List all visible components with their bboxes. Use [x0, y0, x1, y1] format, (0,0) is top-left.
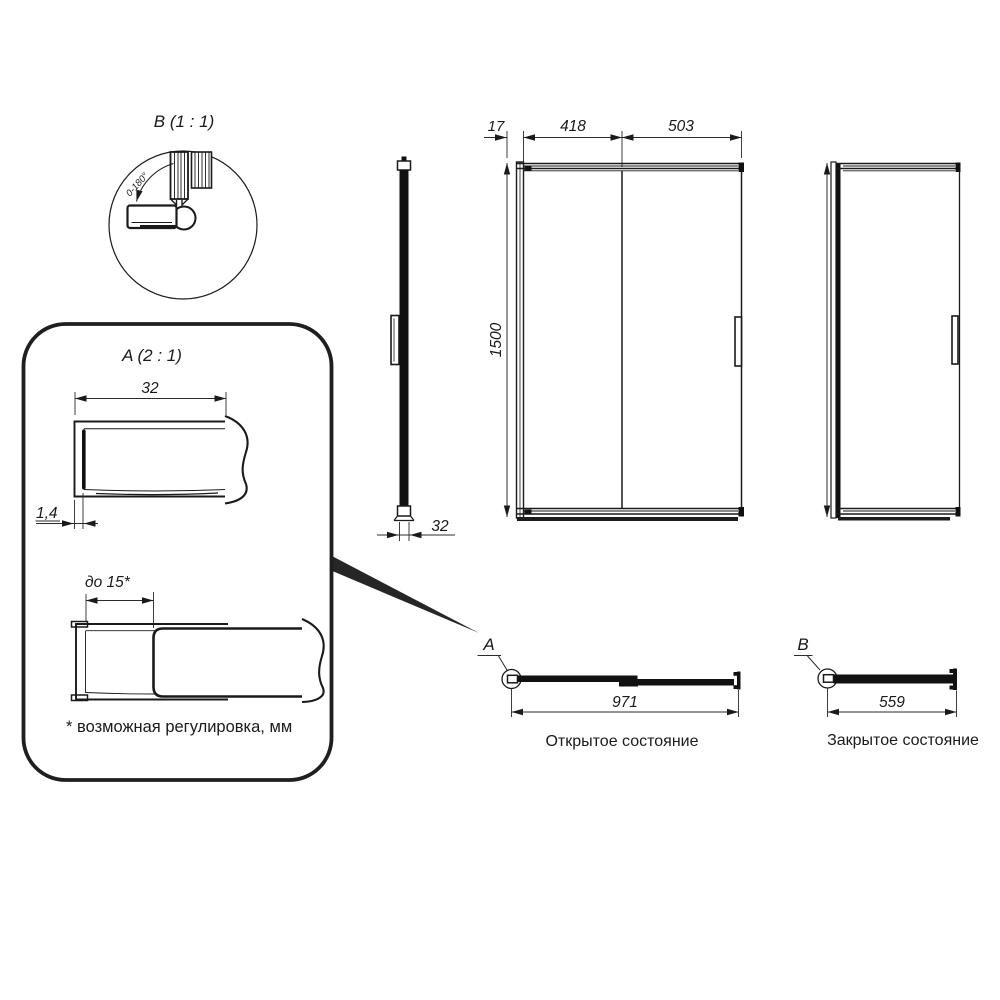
top-view-open-state: A 971 Открытое состояние [478, 635, 741, 750]
open-panel-right [637, 679, 734, 686]
technical-drawing: B (1 : 1) 0-180° A (2 : 1) 32 [0, 0, 1000, 1000]
callout-footnote: * возможная регулировка, мм [66, 718, 292, 736]
front-view-top-rail [517, 163, 744, 173]
open-panel-left [518, 676, 638, 683]
break-line-top [225, 416, 248, 504]
detail-b-title: B (1 : 1) [154, 112, 214, 131]
detail-b-view: B (1 : 1) 0-180° [109, 112, 257, 299]
side-view: 32 [377, 157, 455, 542]
front-view-open: 17 418 503 1500 [484, 118, 744, 521]
dim-label-do-15: до 15* [85, 574, 131, 591]
dim-label-971: 971 [612, 694, 638, 711]
dim-label-1500: 1500 [488, 322, 505, 357]
dim-label-418: 418 [560, 118, 586, 135]
closed-state-label: Закрытое состояние [827, 732, 979, 749]
detail-a-title: A (2 : 1) [121, 346, 182, 365]
detail-b-marker-label: B [797, 635, 808, 654]
closed-view-door-edge [837, 163, 841, 518]
front-view-bottom-rail [517, 507, 744, 521]
callout-leader-wedge [330, 555, 479, 633]
closed-view-top-rail [837, 163, 961, 173]
detail-a-marker-label: A [482, 635, 494, 654]
detail-b-arm [128, 206, 177, 229]
detail-b-door-profile [171, 152, 212, 206]
dim-label-32-side: 32 [431, 518, 449, 535]
top-view-closed-state: B 559 Закрытое состояние [794, 635, 979, 749]
dim-label-559: 559 [879, 694, 905, 711]
side-view-glass-edge [400, 170, 409, 506]
closed-view-bottom-rail [837, 507, 961, 521]
front-view-closed [827, 162, 961, 521]
dim-label-503: 503 [668, 118, 694, 135]
front-view-handle [735, 317, 742, 366]
dim-label-32-profile: 32 [141, 380, 159, 397]
dim-label-17: 17 [488, 118, 505, 135]
open-state-label: Открытое состояние [545, 733, 698, 750]
open-end-bracket [734, 672, 741, 690]
closed-view-handle [952, 316, 958, 364]
drawing-canvas: B (1 : 1) 0-180° A (2 : 1) 32 [0, 0, 1000, 1000]
callout-border [24, 324, 332, 780]
side-view-handle [391, 316, 399, 365]
closed-panel [834, 675, 954, 684]
dim-label-1-4: 1,4 [36, 505, 58, 522]
door-profile-insert [154, 629, 306, 697]
detail-a-callout: A (2 : 1) 32 1,4 до 15* [24, 324, 332, 780]
